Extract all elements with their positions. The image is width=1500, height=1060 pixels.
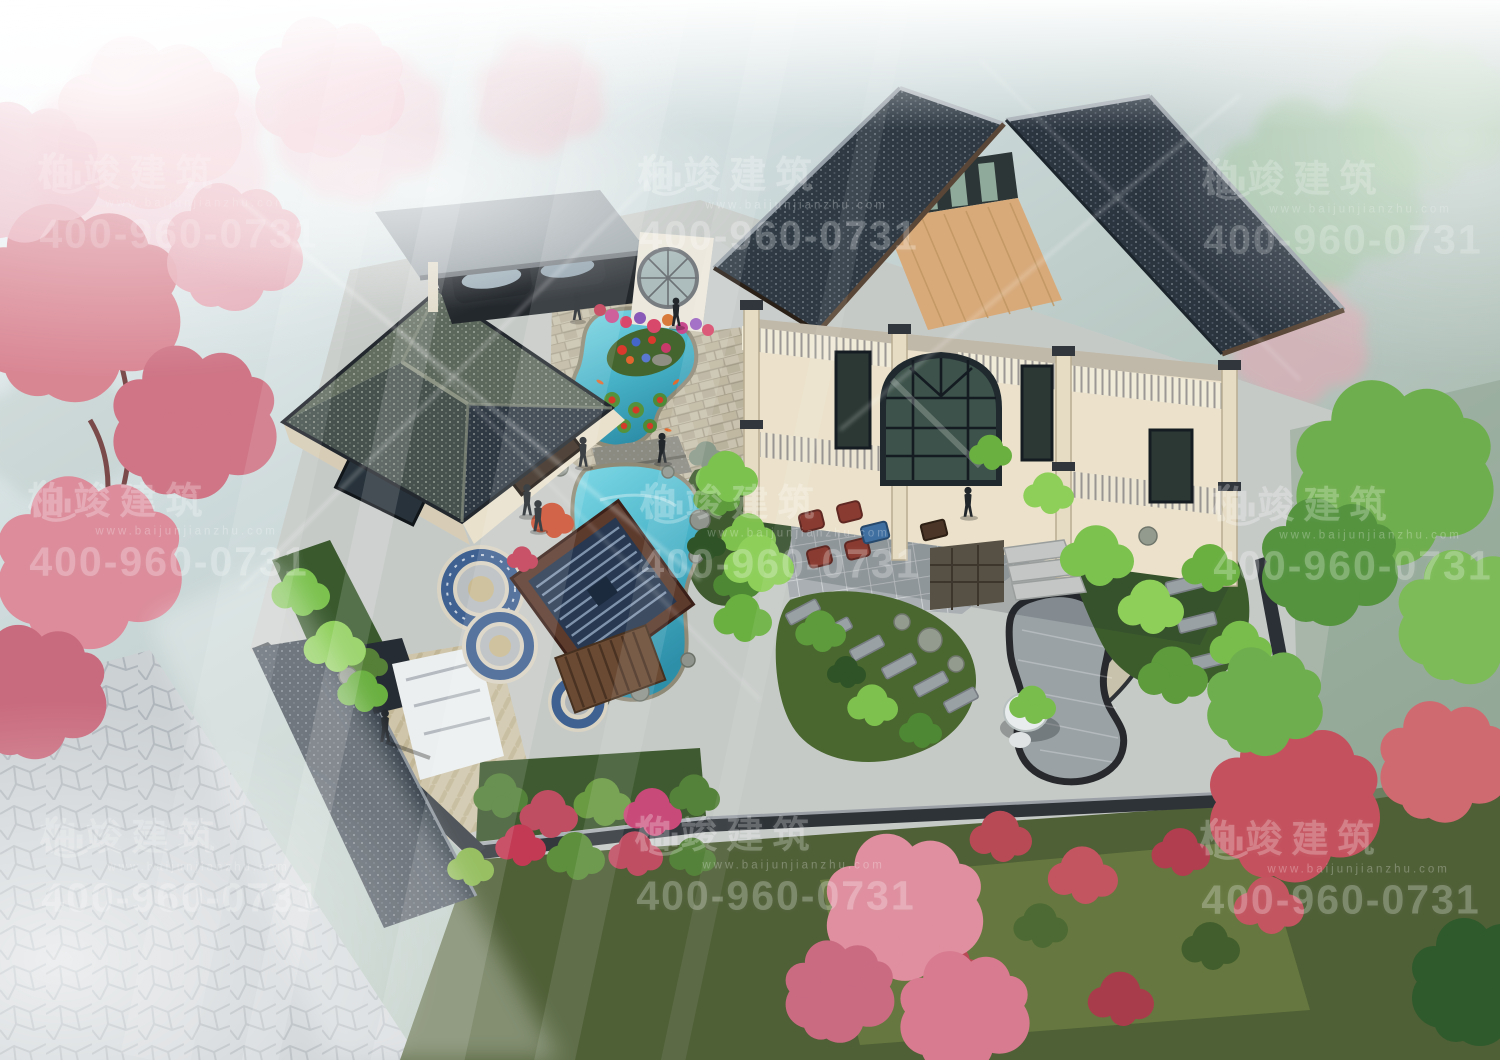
villa-stone-base (930, 540, 1004, 610)
arched-window (880, 352, 1002, 486)
architectural-rendering: 柏竣建筑 www.baijunjianzhu.com 400-960-0731 … (0, 0, 1500, 1060)
scene-canvas (0, 0, 1500, 1060)
